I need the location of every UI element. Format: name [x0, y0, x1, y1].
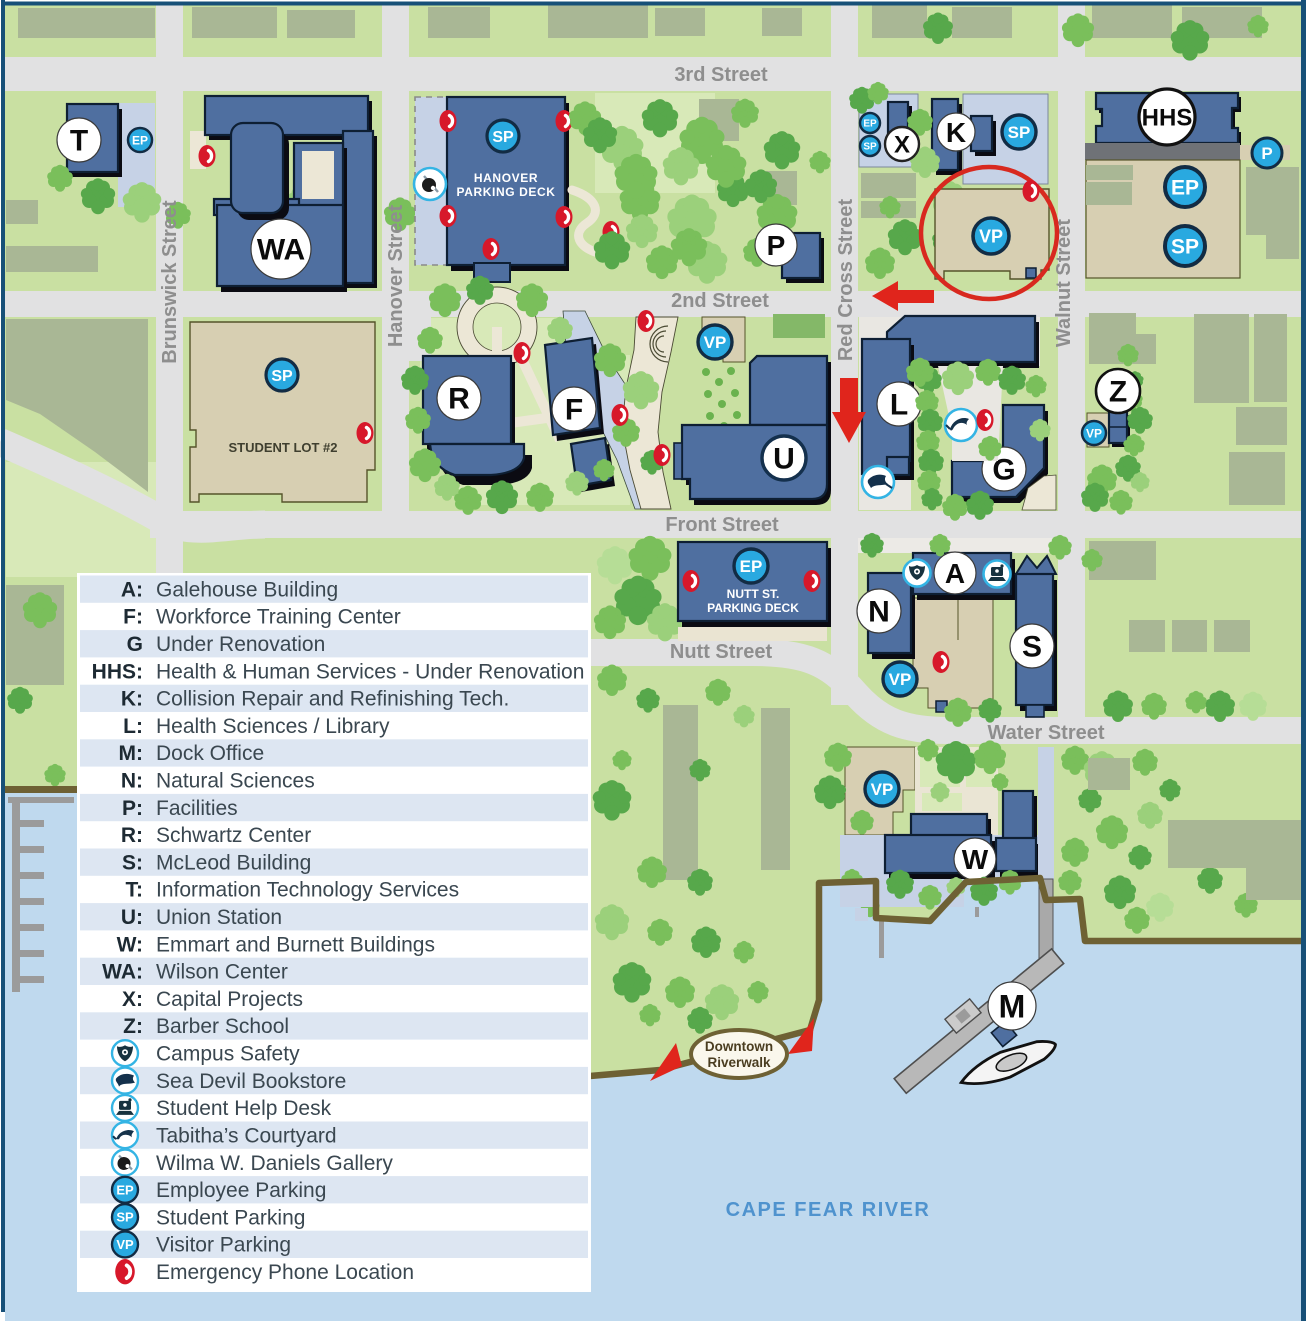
svg-text:Under Renovation: Under Renovation — [156, 633, 325, 656]
svg-text:A:: A: — [121, 578, 143, 601]
svg-text:Schwartz Center: Schwartz Center — [156, 824, 311, 847]
svg-text:P: P — [767, 230, 786, 261]
svg-text:L:: L: — [123, 715, 143, 738]
svg-text:EP: EP — [740, 557, 763, 576]
svg-text:Collision Repair and Refinishi: Collision Repair and Refinishing Tech. — [156, 688, 509, 711]
svg-text:SP: SP — [863, 142, 877, 153]
svg-text:Galehouse Building: Galehouse Building — [156, 578, 338, 601]
svg-text:Sea Devil Bookstore: Sea Devil Bookstore — [156, 1070, 346, 1093]
svg-text:U:: U: — [121, 906, 143, 929]
svg-text:Student Help Desk: Student Help Desk — [156, 1097, 332, 1120]
svg-text:EP: EP — [132, 133, 148, 147]
svg-text:Water Street: Water Street — [987, 722, 1104, 744]
svg-text:SP: SP — [1171, 236, 1199, 259]
svg-text:WA: WA — [257, 234, 305, 267]
svg-text:McLeod Building: McLeod Building — [156, 851, 311, 874]
svg-text:M:: M: — [119, 742, 144, 765]
svg-text:Union Station: Union Station — [156, 906, 282, 929]
svg-text:VP: VP — [979, 227, 1003, 247]
svg-text:NUTT ST.: NUTT ST. — [727, 587, 780, 601]
svg-text:M: M — [999, 988, 1026, 1024]
svg-text:S: S — [1022, 631, 1042, 664]
svg-text:HHS: HHS — [1142, 105, 1193, 132]
svg-text:X:: X: — [122, 988, 143, 1011]
svg-text:STUDENT LOT #2: STUDENT LOT #2 — [228, 440, 337, 455]
svg-text:Wilson Center: Wilson Center — [156, 961, 288, 984]
svg-text:Downtown: Downtown — [705, 1039, 773, 1054]
svg-text:F:: F: — [123, 606, 143, 629]
svg-text:W:: W: — [117, 933, 143, 956]
svg-text:CAPE FEAR RIVER: CAPE FEAR RIVER — [726, 1199, 931, 1221]
svg-text:S:: S: — [122, 851, 143, 874]
svg-text:VP: VP — [889, 670, 912, 689]
svg-text:K: K — [946, 117, 966, 148]
svg-text:EP: EP — [116, 1182, 134, 1197]
svg-text:Employee Parking: Employee Parking — [156, 1179, 326, 1202]
svg-text:Brunswick Street: Brunswick Street — [159, 200, 181, 364]
svg-text:WA:: WA: — [102, 961, 143, 984]
svg-text:L: L — [890, 389, 908, 422]
svg-text:3rd Street: 3rd Street — [674, 64, 768, 86]
svg-text:SP: SP — [492, 129, 514, 146]
svg-text:T: T — [70, 125, 88, 158]
svg-text:Front Street: Front Street — [665, 514, 779, 536]
svg-text:SP: SP — [116, 1210, 134, 1225]
svg-text:Nutt Street: Nutt Street — [670, 641, 773, 663]
svg-text:U: U — [773, 443, 795, 476]
svg-text:Campus Safety: Campus Safety — [156, 1043, 300, 1066]
svg-text:Z: Z — [1109, 376, 1127, 409]
svg-text:P: P — [1261, 144, 1272, 163]
svg-text:VP: VP — [1086, 426, 1102, 440]
svg-text:Tabitha’s Courtyard: Tabitha’s Courtyard — [156, 1125, 337, 1148]
svg-text:W: W — [962, 844, 989, 875]
svg-text:Natural Sciences: Natural Sciences — [156, 770, 315, 793]
svg-text:Z:: Z: — [123, 1015, 143, 1038]
svg-text:Emmart and Burnett Buildings: Emmart and Burnett Buildings — [156, 933, 435, 956]
svg-text:Emergency Phone Location: Emergency Phone Location — [156, 1261, 414, 1284]
svg-text:Workforce Training Center: Workforce Training Center — [156, 606, 401, 629]
svg-text:HHS:: HHS: — [92, 660, 143, 683]
svg-text:Red Cross Street: Red Cross Street — [835, 199, 857, 362]
svg-text:Dock Office: Dock Office — [156, 742, 264, 765]
svg-text:P:: P: — [122, 797, 143, 820]
svg-text:Student Parking: Student Parking — [156, 1206, 305, 1229]
svg-text:R:: R: — [121, 824, 143, 847]
svg-text:G: G — [127, 633, 143, 656]
svg-text:Wilma W. Daniels Gallery: Wilma W. Daniels Gallery — [156, 1152, 393, 1175]
svg-text:VP: VP — [871, 780, 894, 799]
svg-text:2nd Street: 2nd Street — [671, 290, 769, 312]
svg-text:SP: SP — [1008, 123, 1031, 142]
svg-text:VP: VP — [116, 1237, 134, 1252]
svg-text:PARKING DECK: PARKING DECK — [457, 185, 556, 199]
svg-text:X: X — [894, 132, 910, 159]
svg-text:K:: K: — [121, 688, 143, 711]
svg-text:Health & Human Services - Unde: Health & Human Services - Under Renovati… — [156, 660, 584, 683]
svg-text:N:: N: — [121, 770, 143, 793]
svg-text:Riverwalk: Riverwalk — [707, 1055, 771, 1070]
svg-text:R: R — [448, 383, 470, 416]
svg-text:A: A — [945, 558, 965, 589]
svg-text:EP: EP — [1171, 177, 1199, 200]
svg-text:Health Sciences / Library: Health Sciences / Library — [156, 715, 390, 738]
svg-text:PARKING DECK: PARKING DECK — [707, 601, 799, 615]
svg-text:HANOVER: HANOVER — [474, 171, 538, 185]
svg-text:SP: SP — [271, 368, 293, 385]
svg-text:F: F — [565, 394, 583, 427]
svg-text:Information Technology Service: Information Technology Services — [156, 879, 459, 902]
svg-text:Visitor Parking: Visitor Parking — [156, 1234, 291, 1257]
svg-text:EP: EP — [863, 119, 877, 130]
svg-text:Barber School: Barber School — [156, 1015, 289, 1038]
svg-text:Capital Projects: Capital Projects — [156, 988, 303, 1011]
svg-text:N: N — [868, 596, 890, 629]
svg-text:Hanover Street: Hanover Street — [385, 205, 407, 348]
svg-text:VP: VP — [704, 333, 727, 352]
svg-text:T:: T: — [126, 879, 144, 902]
svg-text:Facilities: Facilities — [156, 797, 238, 820]
